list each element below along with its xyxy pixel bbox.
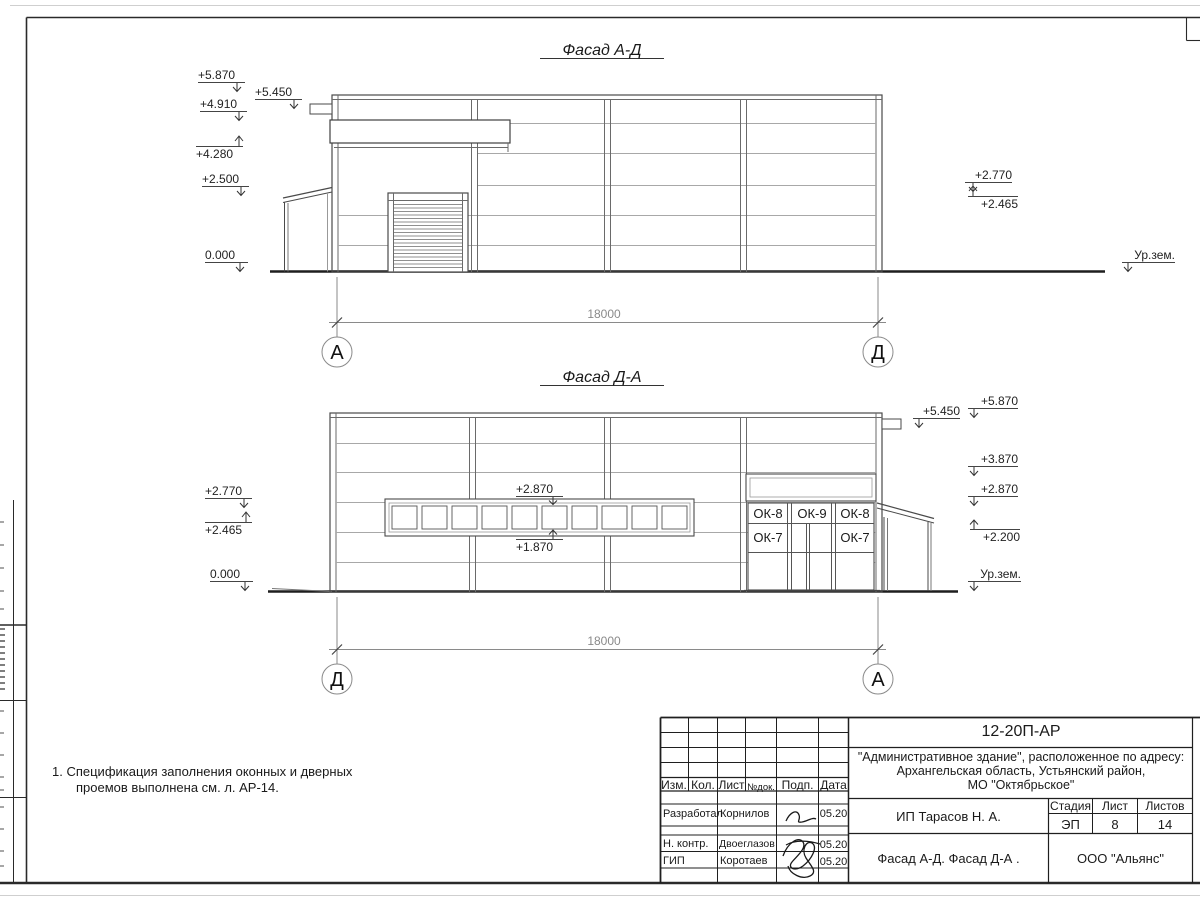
signature-kornilov	[786, 812, 816, 822]
project-name-line-2: Архангельская область, Устьянский район,	[850, 764, 1192, 778]
facade-da-title: Фасад Д-А	[540, 371, 664, 386]
elevation-mark-5870-da: +5.870	[968, 395, 1018, 409]
left-lean-to	[283, 188, 332, 272]
elevation-mark-5450-da: +5.450	[913, 405, 960, 419]
roller-door	[388, 193, 468, 272]
sheets-total: 14	[1138, 818, 1192, 831]
axis-bubble-a-da: А	[863, 668, 893, 692]
date-norm-control: 05.20	[819, 839, 848, 852]
date-developer: 05.20	[819, 808, 848, 821]
drawing-sheet: Фасад А-Д Фасад Д-А +5.870 +4.910 +4.280…	[0, 0, 1200, 900]
sheets-header: Листов	[1138, 800, 1192, 813]
elevation-mark-2465: +2.465	[968, 196, 1018, 211]
elevation-mark-4910: +4.910	[200, 98, 247, 112]
elevation-mark-2500: +2.500	[202, 173, 249, 187]
note-line-1: 1. Спецификация заполнения оконных и две…	[52, 764, 352, 780]
entrance-canopy	[330, 120, 510, 152]
window-label-ok7-left: ОК-7	[749, 530, 787, 546]
dimension-18000-da: 18000	[571, 635, 637, 648]
role-norm-control: Н. контр.	[663, 838, 708, 851]
axis-bubble-d-da: Д	[322, 668, 352, 692]
elevation-mark-4280: +4.280	[196, 146, 243, 161]
window-label-ok7-right: ОК-7	[836, 530, 874, 546]
date-gip: 05.20	[819, 856, 848, 869]
elevation-mark-2200-da: +2.200	[970, 529, 1020, 544]
elevation-mark-2870-mid: +2.870	[516, 483, 563, 497]
elevation-mark-5870: +5.870	[198, 69, 245, 83]
role-gip: ГИП	[663, 855, 685, 868]
organization-name: ООО "Альянс"	[1049, 852, 1192, 865]
ground-level-label: Ур.зем.	[1122, 249, 1175, 263]
window-label-ok8-right: ОК-8	[836, 506, 874, 522]
window-label-ok8-left: ОК-8	[749, 506, 787, 522]
column-header-data: Дата	[819, 779, 848, 792]
note-line-2: проемов выполнена см. л. АР-14.	[76, 780, 279, 796]
name-developer: Корнилов	[720, 808, 769, 821]
elevation-mark-5450: +5.450	[255, 86, 302, 100]
column-header-kol: Кол.	[689, 779, 717, 792]
name-norm-control: Двоеглазов	[719, 838, 775, 851]
stage-value: ЭП	[1049, 818, 1092, 831]
facade-ad-axes	[322, 277, 893, 367]
facade-ad-title: Фасад А-Д	[540, 44, 664, 59]
elevation-mark-3870-da: +3.870	[968, 453, 1018, 467]
role-developer: Разработал	[663, 808, 723, 821]
drawing-title: Фасад А-Д. Фасад Д-А .	[849, 852, 1048, 865]
project-name-line-3: МО "Октябрьское"	[850, 778, 1192, 792]
elevation-mark-2770-da: +2.770	[205, 485, 252, 499]
stage-header: Стадия	[1049, 800, 1092, 813]
facade-ad-elevation	[270, 95, 1105, 272]
document-code: 12-20П-АР	[850, 723, 1192, 741]
axis-bubble-d: Д	[863, 341, 893, 365]
sheet-number: 8	[1093, 818, 1137, 831]
column-header-izm: Изм.	[660, 779, 688, 792]
ground-level-label-da: Ур.зем.	[968, 568, 1021, 582]
elevation-mark-0000-da: 0.000	[210, 568, 253, 582]
window-label-ok9: ОК-9	[793, 506, 831, 522]
facade-da-elevation	[268, 413, 958, 592]
roof-pipe	[310, 104, 332, 114]
project-name-line-1: "Административное здание", расположенное…	[850, 750, 1192, 764]
name-gip: Коротаев	[720, 855, 768, 868]
roof-pipe	[882, 419, 901, 429]
right-porch	[877, 503, 934, 591]
left-margin-stamp-text-fragments	[0, 522, 5, 866]
elevation-mark-2770: +2.770	[965, 169, 1012, 183]
sheet-header: Лист	[1093, 800, 1137, 813]
signatures	[783, 812, 820, 877]
elevation-mark-2465-da: +2.465	[205, 522, 252, 537]
client-name: ИП Тарасов Н. А.	[849, 810, 1048, 823]
column-header-podp: Подп.	[777, 779, 818, 792]
window-ribbon	[385, 499, 694, 536]
dimension-18000: 18000	[571, 308, 637, 321]
column-header-list: Лист	[718, 779, 745, 792]
elevation-mark-2870-da: +2.870	[968, 483, 1018, 497]
elevation-mark-1870: +1.870	[516, 539, 563, 554]
elevation-mark-0000: 0.000	[205, 249, 248, 263]
axis-bubble-a: А	[322, 341, 352, 365]
column-header-ndok: №док.	[746, 781, 776, 794]
signature-dvoeglazov-korotaev	[783, 840, 820, 878]
